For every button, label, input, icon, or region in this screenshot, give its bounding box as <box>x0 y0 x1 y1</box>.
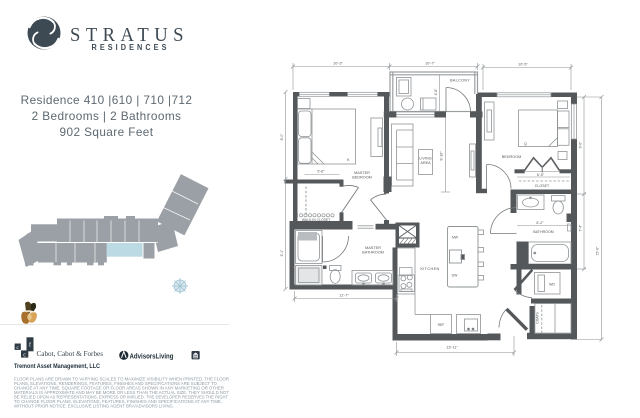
svg-text:K: K <box>347 157 350 162</box>
svg-text:10'-5": 10'-5" <box>518 63 528 67</box>
svg-text:WD: WD <box>549 283 555 287</box>
svg-text:Tremont Asset Management, LLC: Tremont Asset Management, LLC <box>14 363 100 370</box>
svg-text:MASTER: MASTER <box>365 246 381 250</box>
svg-text:BEDROOM: BEDROOM <box>502 155 522 159</box>
svg-text:10'-3": 10'-3" <box>333 62 343 66</box>
svg-text:11'-7": 11'-7" <box>339 294 349 298</box>
svg-text:COATS: COATS <box>536 312 540 324</box>
svg-text:Q: Q <box>524 142 527 146</box>
svg-text:RESIDENCES: RESIDENCES <box>92 43 170 52</box>
svg-text:13'-11": 13'-11" <box>446 346 458 350</box>
svg-text:WITHOUT PRIOR NOTICE. EXCLUSIV: WITHOUT PRIOR NOTICE. EXCLUSIVE LISTING … <box>14 404 174 409</box>
svg-text:c: c <box>23 352 26 358</box>
svg-text:AREA: AREA <box>420 161 431 165</box>
svg-text:5'-6": 5'-6" <box>317 170 325 174</box>
svg-text:CLOSET: CLOSET <box>535 184 550 188</box>
svg-text:6'-1": 6'-1" <box>280 249 284 257</box>
svg-text:6'-5": 6'-5" <box>537 173 545 177</box>
svg-text:15'-6": 15'-6" <box>596 246 600 255</box>
svg-text:902 Square Feet: 902 Square Feet <box>60 125 154 139</box>
svg-text:10'-7": 10'-7" <box>425 62 435 66</box>
svg-text:Cabot, Cabot & Forbes: Cabot, Cabot & Forbes <box>37 349 104 358</box>
svg-text:LIVING: LIVING <box>419 157 431 161</box>
svg-text:8'-0": 8'-0" <box>280 133 284 141</box>
svg-text:BALCONY: BALCONY <box>450 78 470 83</box>
svg-text:Residence 410 |610 | 710 |712: Residence 410 |610 | 710 |712 <box>21 93 193 107</box>
svg-text:KITCHEN: KITCHEN <box>420 266 439 271</box>
svg-text:REF: REF <box>438 323 445 327</box>
svg-text:AdvisorsLiving: AdvisorsLiving <box>130 353 174 360</box>
svg-text:BEDROOM: BEDROOM <box>352 176 372 180</box>
svg-text:9'-6": 9'-6" <box>579 141 583 149</box>
svg-text:BATHROOM: BATHROOM <box>362 251 384 255</box>
svg-text:MW: MW <box>452 236 459 240</box>
svg-text:7'-4": 7'-4" <box>579 224 583 232</box>
svg-text:MASTER: MASTER <box>354 171 370 175</box>
svg-text:DW: DW <box>452 274 458 278</box>
svg-text:BATHROOM: BATHROOM <box>533 230 554 234</box>
svg-text:WALK-IN CLOSET: WALK-IN CLOSET <box>302 218 331 222</box>
svg-text:2 Bedrooms | 2 Bathrooms: 2 Bedrooms | 2 Bathrooms <box>32 109 182 123</box>
svg-text:4'-8": 4'-8" <box>434 88 438 96</box>
svg-text:6'-2": 6'-2" <box>536 221 544 225</box>
svg-text:9'-10": 9'-10" <box>440 151 444 161</box>
